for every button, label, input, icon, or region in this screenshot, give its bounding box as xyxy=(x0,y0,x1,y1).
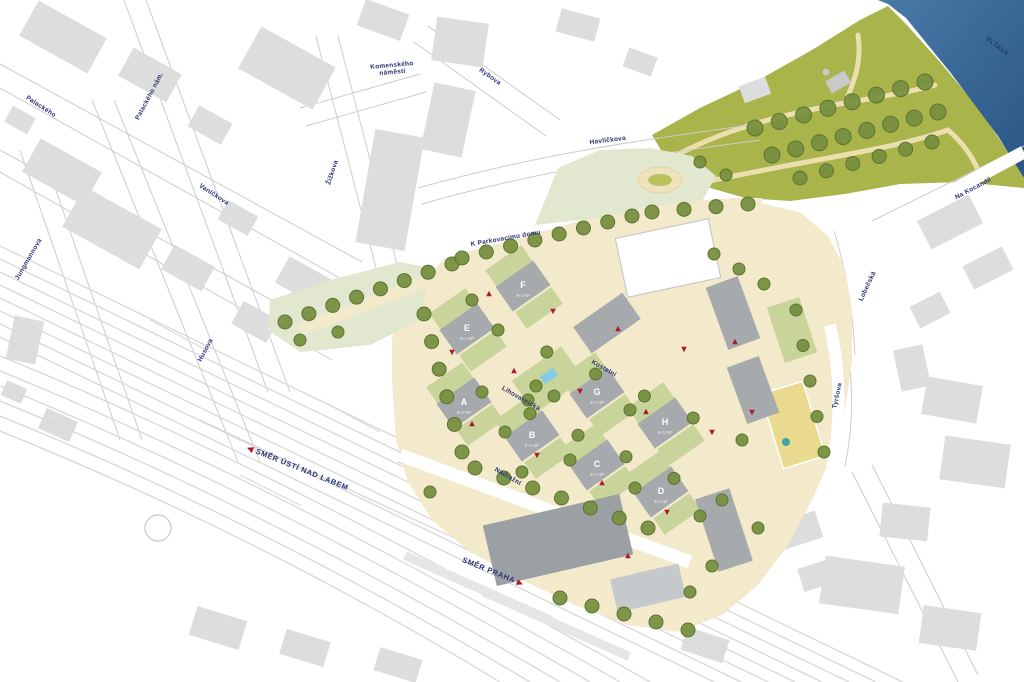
tree-icon xyxy=(583,501,597,515)
building-letter-g: G xyxy=(593,387,600,397)
tree-icon xyxy=(694,510,706,522)
tree-icon xyxy=(440,390,454,404)
building-floors-d: 8+1 NP xyxy=(654,499,668,504)
tree-icon xyxy=(930,104,946,120)
tree-icon xyxy=(553,591,567,605)
tree-icon xyxy=(736,434,748,446)
tree-icon xyxy=(638,390,650,402)
tree-icon xyxy=(733,263,745,275)
tree-icon xyxy=(492,324,504,336)
tree-icon xyxy=(326,298,340,312)
tree-icon xyxy=(811,411,823,423)
tree-icon xyxy=(818,446,830,458)
tree-icon xyxy=(846,157,860,171)
building-letter-a: A xyxy=(461,397,468,407)
tree-icon xyxy=(476,386,488,398)
tree-icon xyxy=(620,451,632,463)
street-label-husova: Husova xyxy=(197,338,215,363)
tree-icon xyxy=(925,135,939,149)
tree-icon xyxy=(706,560,718,572)
building-floors-e: 8+1 NP xyxy=(460,336,474,341)
context-building xyxy=(879,503,930,542)
tree-icon xyxy=(868,87,884,103)
tree-icon xyxy=(649,615,663,629)
railway-switch xyxy=(320,400,380,432)
context-building xyxy=(238,26,336,109)
tree-icon xyxy=(612,511,626,525)
context-building xyxy=(19,1,107,74)
context-building xyxy=(962,246,1013,289)
tree-icon xyxy=(624,404,636,416)
tree-icon xyxy=(771,113,787,129)
street-label-jungmannova: Jungmannova xyxy=(14,237,44,281)
tree-icon xyxy=(819,164,833,178)
tree-icon xyxy=(681,623,695,637)
context-building xyxy=(279,629,331,667)
tree-icon xyxy=(820,100,836,116)
context-building xyxy=(939,436,1010,489)
tree-icon xyxy=(684,586,696,598)
tree-icon xyxy=(373,282,387,296)
court-accent xyxy=(782,438,790,446)
street-label-vanickova: Vaníčkova xyxy=(198,183,230,207)
tree-icon xyxy=(883,116,899,132)
tree-icon xyxy=(645,205,659,219)
building-floors-b: 8+1 NP xyxy=(525,443,539,448)
context-building xyxy=(622,47,657,76)
tree-icon xyxy=(455,445,469,459)
tree-icon xyxy=(421,265,435,279)
building-floors-g: 8+1 NP xyxy=(590,400,604,405)
tree-icon xyxy=(709,200,723,214)
tree-icon xyxy=(752,522,764,534)
building-letter-e: E xyxy=(464,323,470,333)
building-floors-f: 8+1 NP xyxy=(516,293,530,298)
context-building xyxy=(431,17,489,68)
tree-icon xyxy=(294,334,306,346)
tree-icon xyxy=(397,274,411,288)
tree-icon xyxy=(859,122,875,138)
tree-icon xyxy=(716,494,728,506)
tree-icon xyxy=(708,248,720,260)
direction-label-smer-usti-nad-labem: ◀ SMĚR ÚSTÍ NAD LABEM xyxy=(245,443,350,492)
tree-icon xyxy=(479,245,493,259)
site-plan-map: A8+1 NPB8+1 NPC8+1 NPD8+1 NPE8+1 NPF8+1 … xyxy=(0,0,1024,682)
tree-icon xyxy=(872,149,886,163)
tree-icon xyxy=(552,227,566,241)
building-letter-b: B xyxy=(529,430,536,440)
tree-icon xyxy=(302,307,316,321)
context-building xyxy=(893,344,931,391)
tree-icon xyxy=(758,278,770,290)
context-building xyxy=(556,8,601,42)
tree-icon xyxy=(797,340,809,352)
context-building xyxy=(373,647,422,682)
tree-icon xyxy=(804,375,816,387)
tree-icon xyxy=(601,215,615,229)
building-floors-h: 8+1 NP xyxy=(658,430,672,435)
park-feature xyxy=(823,69,830,76)
street-edge xyxy=(306,92,426,126)
tree-icon xyxy=(694,156,706,168)
tree-icon xyxy=(350,290,364,304)
tree-icon xyxy=(466,294,478,306)
tree-icon xyxy=(585,599,599,613)
tree-icon xyxy=(555,491,569,505)
tree-icon xyxy=(516,466,528,478)
context-building xyxy=(188,105,233,144)
tree-icon xyxy=(835,129,851,145)
building-letter-f: F xyxy=(520,280,526,290)
tree-icon xyxy=(447,417,461,431)
building-floors-a: 8+1 NP xyxy=(457,410,471,415)
tree-icon xyxy=(844,94,860,110)
context-building xyxy=(189,606,247,650)
tree-icon xyxy=(893,81,909,97)
tree-icon xyxy=(793,171,807,185)
context-building xyxy=(919,605,982,651)
tree-icon xyxy=(424,486,436,498)
tree-icon xyxy=(576,221,590,235)
turntable xyxy=(145,515,171,541)
tree-icon xyxy=(790,304,802,316)
context-building xyxy=(4,106,35,134)
tree-icon xyxy=(332,326,344,338)
tree-icon xyxy=(499,426,511,438)
tree-icon xyxy=(530,380,542,392)
building-floors-c: 8+1 NP xyxy=(590,472,604,477)
tree-icon xyxy=(278,315,292,329)
context-building xyxy=(218,200,258,236)
tree-icon xyxy=(564,454,576,466)
tree-icon xyxy=(687,412,699,424)
tree-icon xyxy=(541,346,553,358)
tree-icon xyxy=(417,307,431,321)
tree-icon xyxy=(788,141,804,157)
tree-icon xyxy=(625,209,639,223)
tree-icon xyxy=(526,481,540,495)
tree-icon xyxy=(917,74,933,90)
street-label-komenskeho-namesti: Komenskéhonáměstí xyxy=(370,60,414,78)
street-label-havlickova: Havlíčkova xyxy=(589,135,626,146)
tree-icon xyxy=(741,197,755,211)
tree-icon xyxy=(906,110,922,126)
plaza-green xyxy=(648,174,672,186)
tree-icon xyxy=(764,147,780,163)
building-letter-d: D xyxy=(658,486,665,496)
tree-icon xyxy=(468,461,482,475)
tree-icon xyxy=(747,120,763,136)
tree-icon xyxy=(629,482,641,494)
context-building xyxy=(355,129,424,251)
tree-icon xyxy=(796,107,812,123)
tree-icon xyxy=(548,390,560,402)
tree-icon xyxy=(617,607,631,621)
tree-icon xyxy=(572,429,584,441)
map-canvas: A8+1 NPB8+1 NPC8+1 NPD8+1 NPE8+1 NPF8+1 … xyxy=(0,0,1024,682)
context-building xyxy=(909,292,950,329)
context-building xyxy=(921,376,983,423)
context-building xyxy=(420,82,475,157)
tree-icon xyxy=(455,251,469,265)
street-label-zizkova: Žižkova xyxy=(323,159,340,186)
building-letter-h: H xyxy=(662,417,669,427)
context-building xyxy=(357,0,410,41)
tree-icon xyxy=(641,521,655,535)
tree-icon xyxy=(668,472,680,484)
building-letter-c: C xyxy=(594,459,601,469)
tree-icon xyxy=(677,202,691,216)
tree-icon xyxy=(811,135,827,151)
tree-icon xyxy=(899,142,913,156)
tree-icon xyxy=(720,169,732,181)
tree-icon xyxy=(425,335,439,349)
tree-icon xyxy=(432,362,446,376)
